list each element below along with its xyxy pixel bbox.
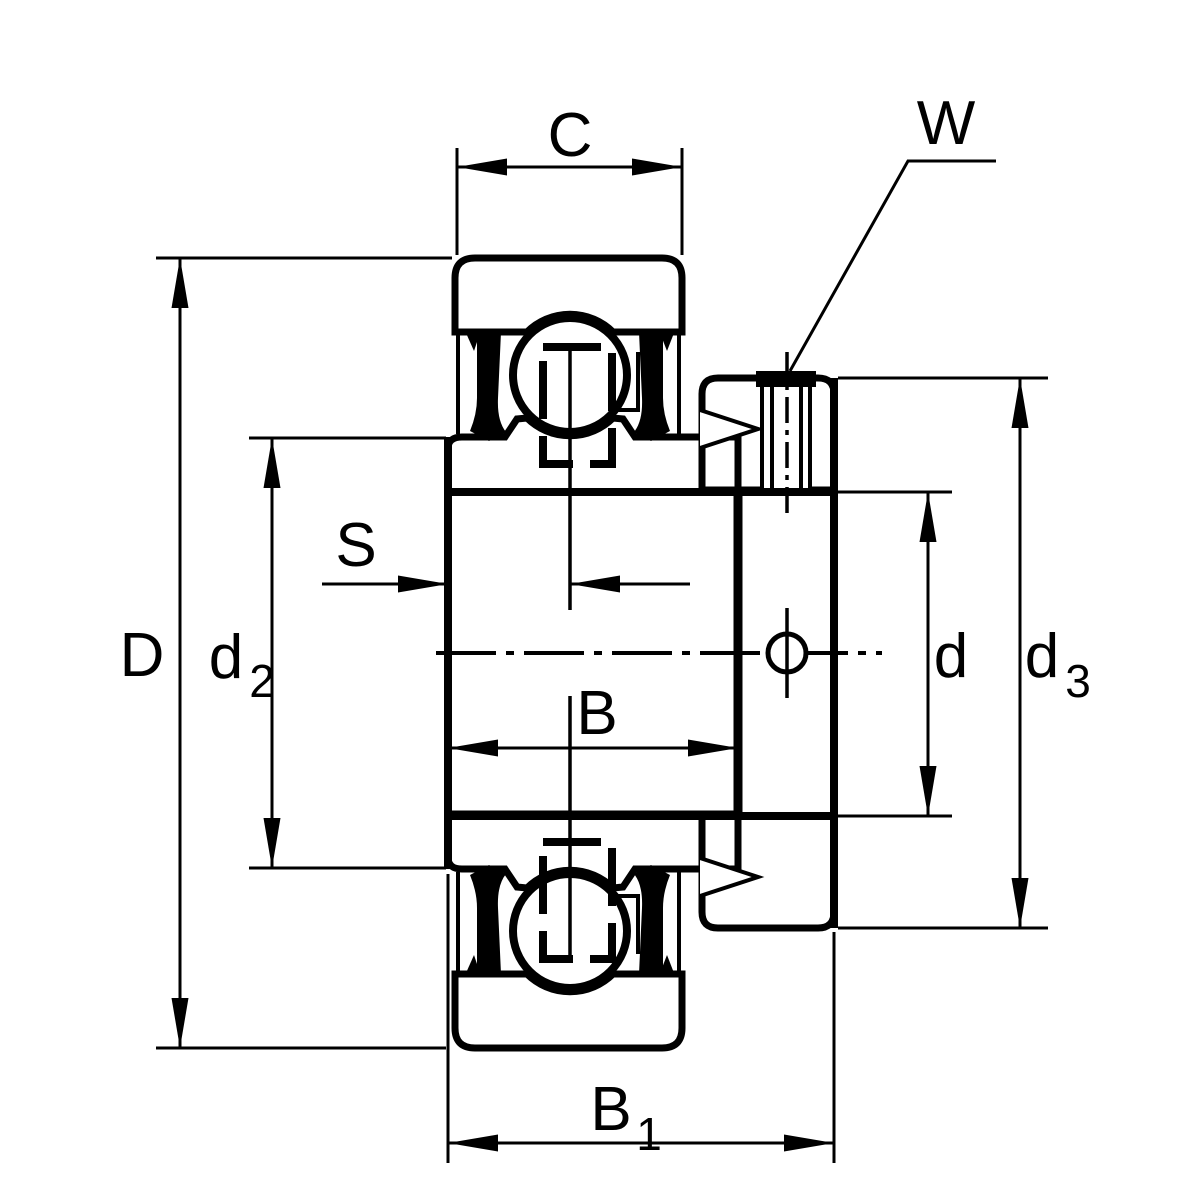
dim-d: d bbox=[838, 492, 968, 816]
bearing-section-drawing: C W D d 2 S B bbox=[0, 0, 1200, 1200]
collar-eccentric-recess bbox=[700, 410, 758, 448]
dim-label-D: D bbox=[120, 621, 165, 690]
dim-B: B bbox=[448, 679, 738, 757]
dim-label-S: S bbox=[335, 511, 376, 580]
seal-bottom-left bbox=[470, 865, 506, 974]
dim-d2: d 2 bbox=[209, 438, 446, 868]
dim-W: W bbox=[790, 89, 996, 371]
dim-label-d: d bbox=[934, 622, 968, 691]
seal-top-left bbox=[470, 332, 506, 441]
dim-D: D bbox=[120, 258, 452, 1048]
collar-eccentric-recess bbox=[700, 858, 758, 896]
dim-B1: B 1 bbox=[448, 874, 834, 1163]
dim-label-d3: d bbox=[1025, 622, 1059, 691]
dim-label-B1: B bbox=[590, 1075, 631, 1144]
drawing-canvas: C W D d 2 S B bbox=[0, 0, 1200, 1200]
dim-label-d3-subscript: 3 bbox=[1065, 655, 1091, 707]
dim-label-d2: d bbox=[209, 623, 243, 692]
dim-label-B: B bbox=[576, 679, 617, 748]
dim-S: S bbox=[322, 511, 690, 593]
dim-label-W: W bbox=[917, 89, 976, 158]
dim-label-C: C bbox=[548, 101, 593, 170]
dim-C: C bbox=[457, 101, 682, 255]
centerlines bbox=[436, 608, 882, 698]
dim-label-d2-subscript: 2 bbox=[249, 655, 275, 707]
dim-label-B1-subscript: 1 bbox=[636, 1108, 662, 1160]
